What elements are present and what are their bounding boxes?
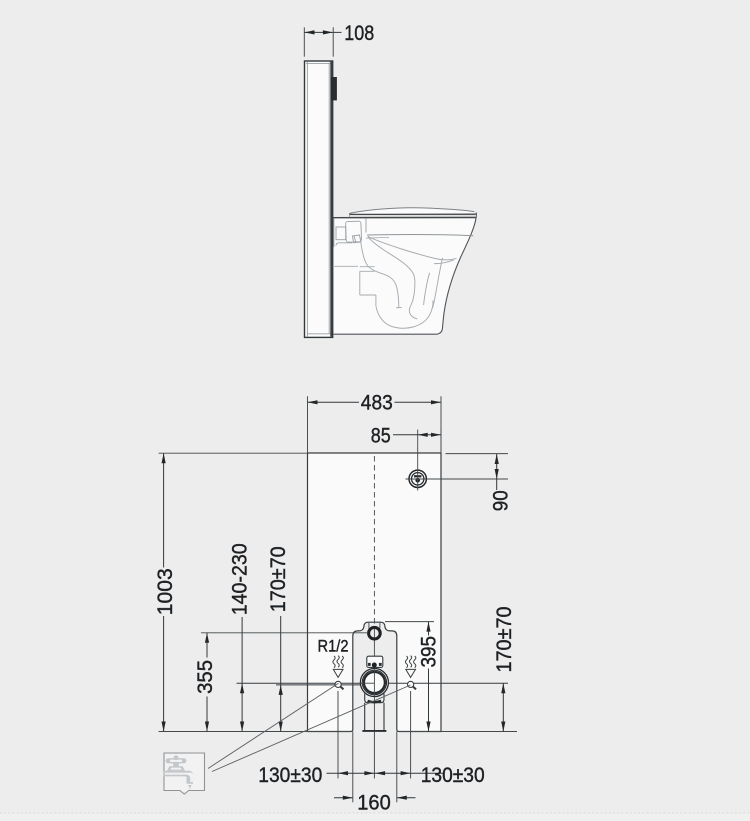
svg-text:483: 483 bbox=[361, 390, 393, 414]
svg-text:130±30: 130±30 bbox=[258, 763, 322, 787]
svg-text:355: 355 bbox=[193, 660, 217, 694]
svg-text:140-230: 140-230 bbox=[228, 543, 252, 615]
svg-text:1003: 1003 bbox=[153, 568, 177, 615]
svg-text:170±70: 170±70 bbox=[492, 606, 516, 672]
svg-text:90: 90 bbox=[489, 490, 513, 511]
svg-text:108: 108 bbox=[344, 21, 374, 45]
svg-text:85: 85 bbox=[371, 424, 391, 448]
svg-text:395: 395 bbox=[417, 636, 441, 668]
svg-text:R1/2: R1/2 bbox=[318, 636, 349, 655]
svg-text:130±30: 130±30 bbox=[421, 763, 485, 787]
svg-text:160: 160 bbox=[357, 791, 391, 815]
svg-text:170±70: 170±70 bbox=[266, 546, 290, 612]
